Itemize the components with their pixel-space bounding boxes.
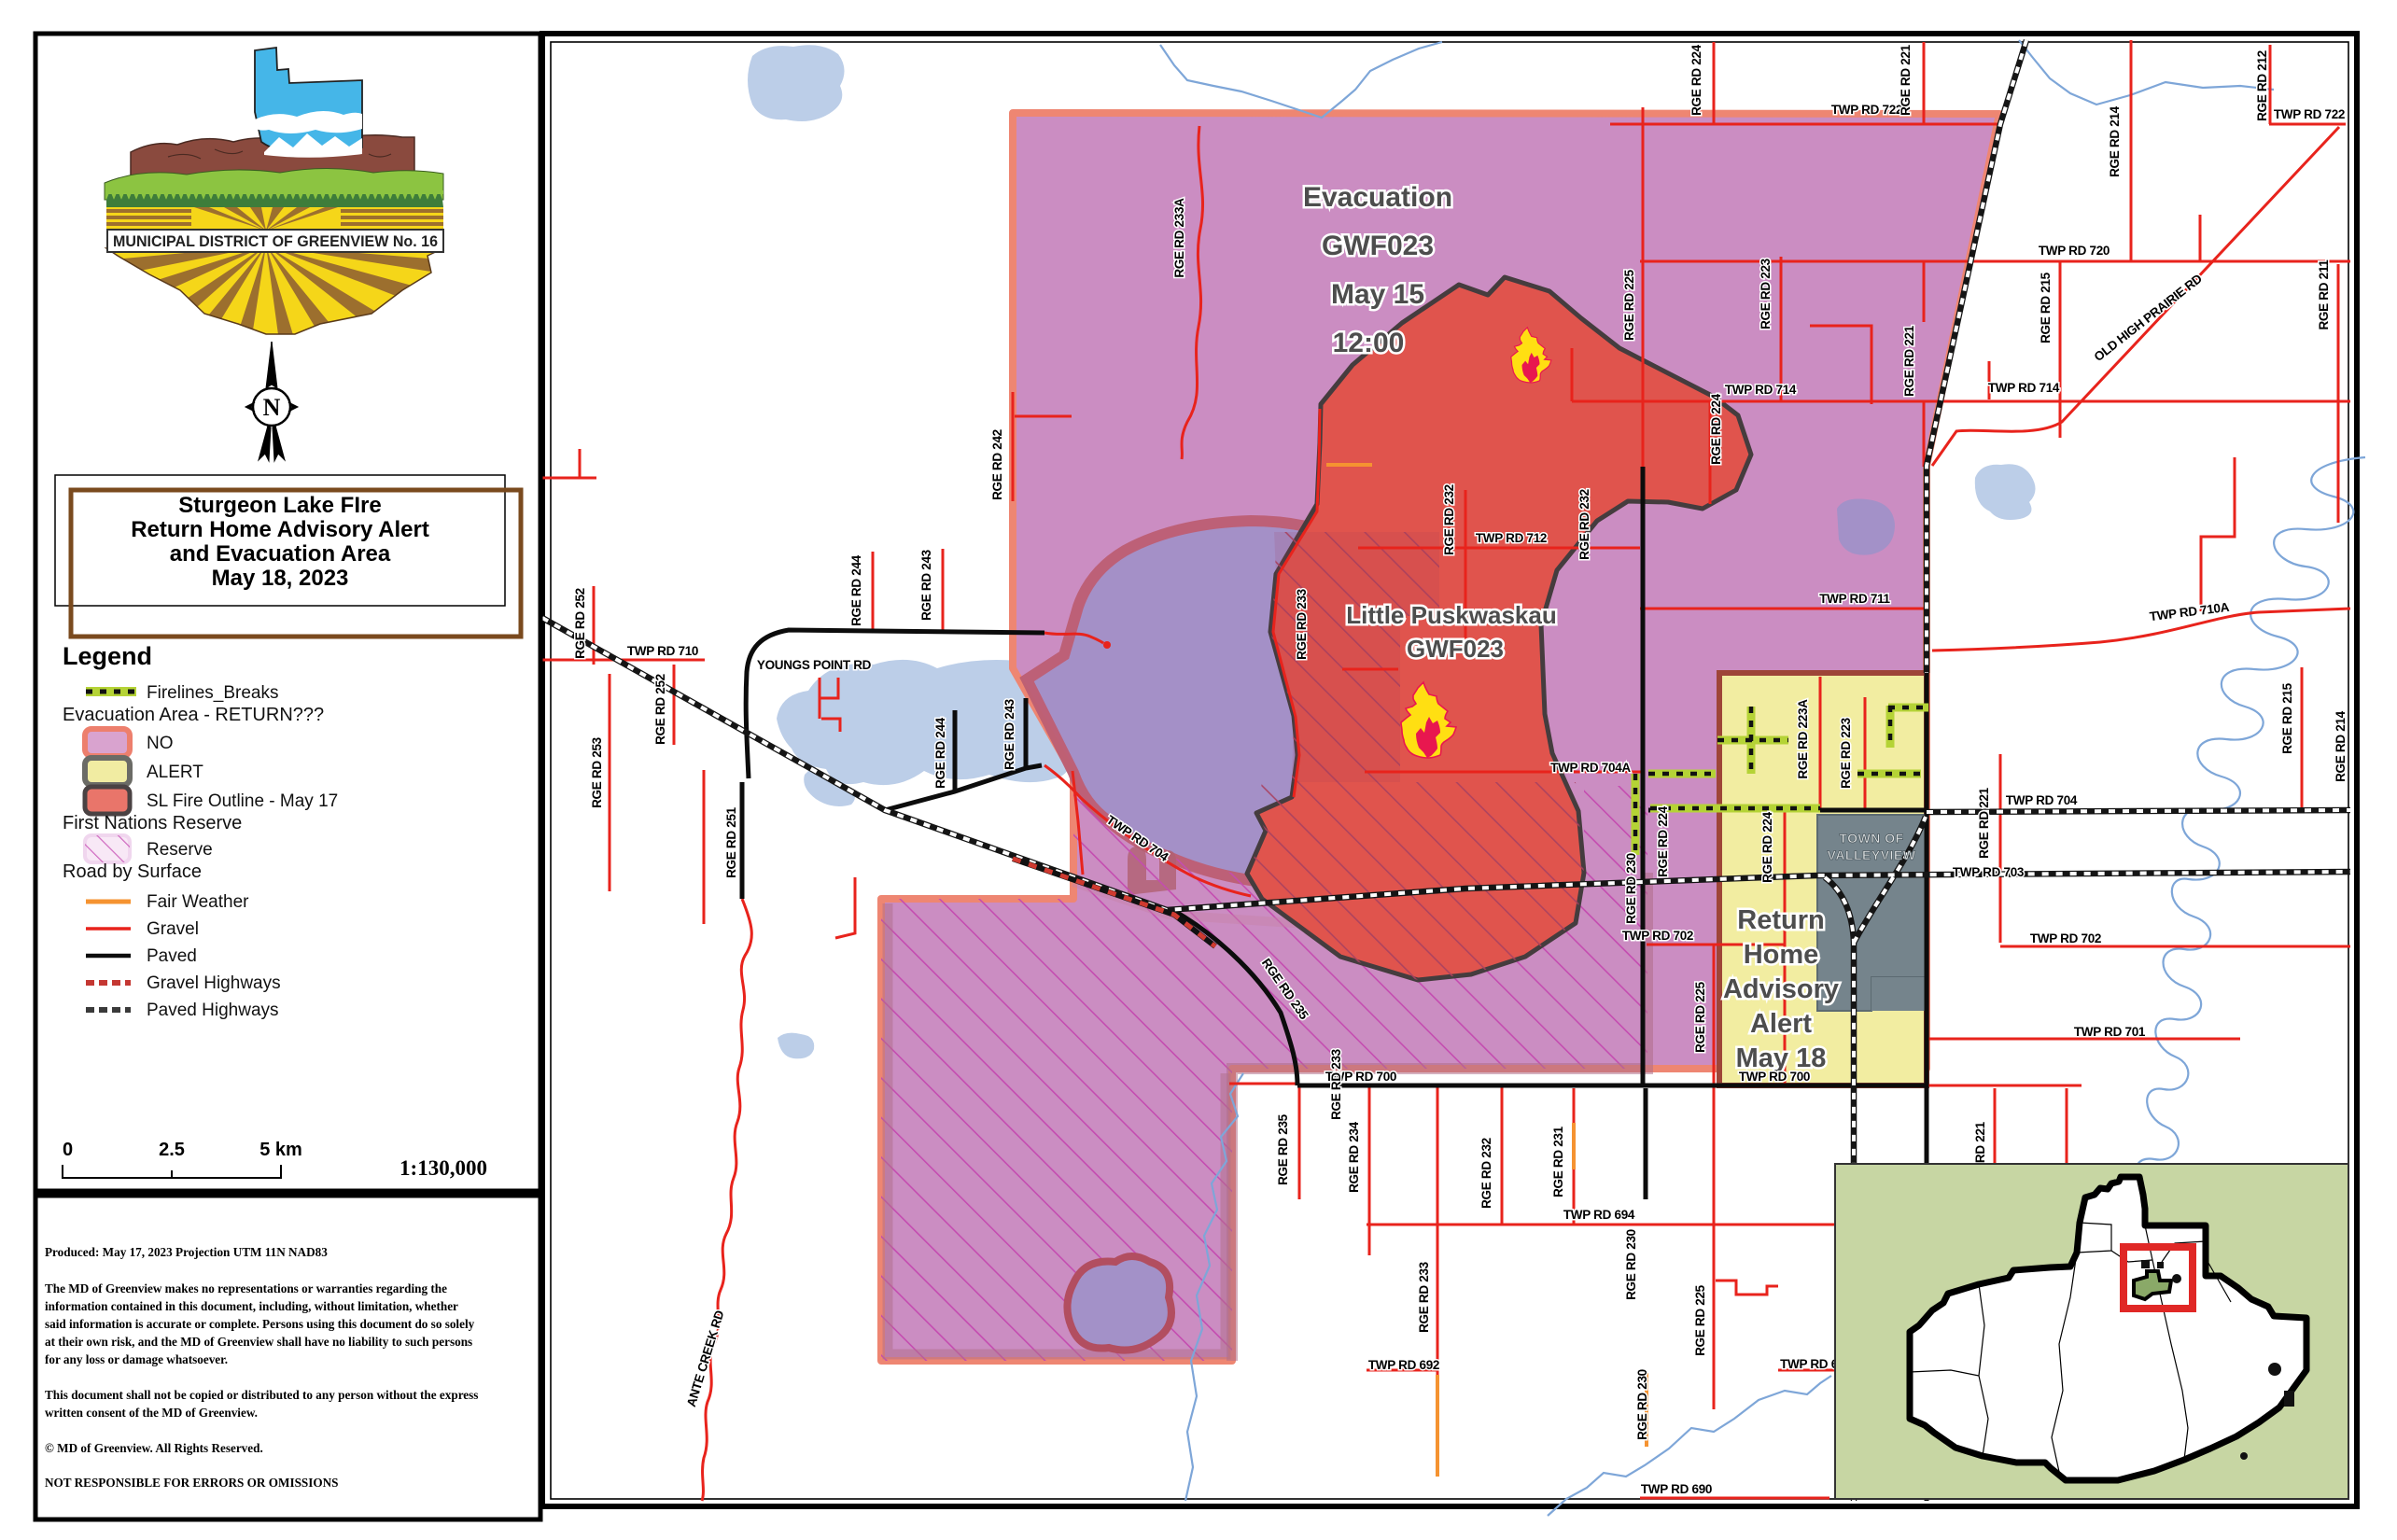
svg-text:Legend: Legend [63,642,152,670]
svg-text:1:130,000: 1:130,000 [399,1156,487,1180]
svg-text:NOT RESPONSIBLE FOR ERRORS OR: NOT RESPONSIBLE FOR ERRORS OR OMISSIONS [45,1476,339,1490]
svg-text:TWP RD 722: TWP RD 722 [2274,107,2345,121]
svg-text:RGE RD 233: RGE RD 233 [1329,1048,1343,1120]
svg-text:TOWN OF: TOWN OF [1839,831,1903,846]
svg-text:RGE RD 221: RGE RD 221 [1977,787,1991,859]
svg-text:RGE RD 243: RGE RD 243 [919,549,933,621]
svg-text:Road by Surface: Road by Surface [63,861,202,882]
svg-text:TWP RD 714: TWP RD 714 [1988,381,2060,395]
svg-text:TWP RD 700: TWP RD 700 [1739,1070,1810,1084]
svg-text:RGE RD 230: RGE RD 230 [1635,1369,1649,1440]
svg-text:Gravel Highways: Gravel Highways [147,973,281,993]
svg-text:GWF023: GWF023 [1322,231,1434,261]
svg-text:Fair Weather: Fair Weather [147,892,249,912]
svg-text:RGE RD 235: RGE RD 235 [1276,1113,1290,1185]
svg-text:Alert: Alert [1750,1009,1812,1039]
svg-text:5 km: 5 km [259,1140,302,1160]
svg-text:Gravel: Gravel [147,919,199,939]
svg-text:GWF023: GWF023 [1407,635,1504,663]
svg-text:RGE RD 224: RGE RD 224 [1689,44,1703,116]
svg-text:RGE RD 233: RGE RD 233 [1295,588,1309,660]
svg-text:RGE RD 214: RGE RD 214 [2108,105,2122,177]
svg-text:TWP RD 694: TWP RD 694 [1563,1208,1635,1222]
svg-text:RGE RD 225: RGE RD 225 [1622,269,1636,341]
svg-text:RGE RD 253: RGE RD 253 [590,736,604,808]
svg-text:Home: Home [1744,940,1819,970]
svg-text:TWP RD 704A: TWP RD 704A [1550,761,1631,775]
svg-text:TWP RD 714: TWP RD 714 [1725,383,1797,397]
svg-text:Reserve: Reserve [147,840,213,860]
svg-text:Return Home Advisory Alert: Return Home Advisory Alert [131,517,429,542]
svg-text:TWP RD 711: TWP RD 711 [1819,592,1890,606]
svg-text:RGE RD 232: RGE RD 232 [1442,484,1456,555]
svg-text:RGE RD 221: RGE RD 221 [1899,44,1913,116]
svg-text:TWP RD 722: TWP RD 722 [1831,103,1902,117]
svg-text:TWP RD 702: TWP RD 702 [2030,931,2101,945]
svg-text:RGE RD 223: RGE RD 223 [1839,717,1853,789]
svg-text:TWP RD 710: TWP RD 710 [627,644,698,658]
svg-text:information contained in this: information contained in this document, … [45,1299,458,1313]
svg-text:TWP RD 6: TWP RD 6 [1780,1357,1839,1371]
svg-text:RGE RD 215: RGE RD 215 [2039,272,2053,343]
svg-text:ALERT: ALERT [147,763,203,782]
svg-text:RGE RD 211: RGE RD 211 [2317,259,2331,330]
svg-text:and Evacuation Area: and Evacuation Area [170,541,391,567]
svg-text:RGE RD 251: RGE RD 251 [724,806,738,878]
svg-text:RGE RD 252: RGE RD 252 [573,588,587,659]
svg-text:RGE RD 230: RGE RD 230 [1624,1229,1638,1300]
svg-text:May 15: May 15 [1331,279,1424,310]
svg-text:RGE RD 243: RGE RD 243 [1002,698,1016,770]
svg-text:© MD of Greenview. All Rights: © MD of Greenview. All Rights Reserved. [45,1441,263,1455]
svg-text:RGE RD 233: RGE RD 233 [1417,1261,1431,1333]
svg-text:Sturgeon Lake FIre: Sturgeon Lake FIre [178,493,381,518]
svg-text:RGE RD 212: RGE RD 212 [2255,50,2269,121]
svg-text:VALLEYVIEW: VALLEYVIEW [1828,847,1916,862]
svg-text:RGE RD 244: RGE RD 244 [933,717,947,789]
svg-text:N: N [263,394,281,421]
svg-text:TWP RD 702: TWP RD 702 [1622,929,1693,943]
svg-text:First Nations Reserve: First Nations Reserve [63,813,242,833]
svg-text:RGE RD 252: RGE RD 252 [653,674,667,745]
svg-text:RGE RD 224: RGE RD 224 [1760,811,1774,883]
svg-text:RGE RD 234: RGE RD 234 [1347,1121,1361,1193]
svg-text:RGE RD 224: RGE RD 224 [1709,393,1723,465]
svg-text:2.5: 2.5 [159,1140,185,1160]
svg-text:Evacuation Area - RETURN???: Evacuation Area - RETURN??? [63,705,324,725]
svg-text:Produced: May 17, 2023 Projec: Produced: May 17, 2023 Projection UTM 11… [45,1245,328,1259]
svg-text:written consent of the MD of G: written consent of the MD of Greenview. [45,1406,258,1420]
svg-text:RGE RD 214: RGE RD 214 [2334,710,2348,782]
svg-text:Advisory: Advisory [1723,974,1839,1004]
svg-text:for any loss or damage whatsoe: for any loss or damage whatsoever. [45,1352,228,1366]
svg-text:RGE RD 232: RGE RD 232 [1479,1138,1493,1209]
svg-text:RGE RD 244: RGE RD 244 [849,554,863,626]
svg-text:Evacuation: Evacuation [1303,182,1452,213]
svg-text:Little Puskwaskau: Little Puskwaskau [1346,601,1556,629]
svg-text:MUNICIPAL DISTRICT OF GREENVIE: MUNICIPAL DISTRICT OF GREENVIEW No. 16 [113,232,438,250]
svg-text:TWP RD 703: TWP RD 703 [1953,865,2025,879]
svg-text:TWP RD 701: TWP RD 701 [2074,1025,2146,1039]
svg-text:TWP RD 704: TWP RD 704 [2006,793,2078,807]
svg-text:RGE RD 230: RGE RD 230 [1624,853,1638,924]
svg-text:Firelines_Breaks: Firelines_Breaks [147,683,279,703]
svg-text:RGE RD 225: RGE RD 225 [1693,981,1707,1053]
svg-text:12:00: 12:00 [1333,328,1405,358]
svg-text:RGE RD 223A: RGE RD 223A [1796,699,1810,779]
svg-text:RGE RD 223: RGE RD 223 [1759,258,1773,329]
svg-text:RGE RD 242: RGE RD 242 [990,429,1004,500]
svg-text:TWP RD 712: TWP RD 712 [1476,531,1547,545]
svg-text:Paved: Paved [147,946,197,966]
svg-text:0: 0 [63,1140,73,1160]
svg-text:TWP RD 720: TWP RD 720 [2039,244,2110,258]
svg-text:This document shall not be cop: This document shall not be copied or dis… [45,1388,478,1402]
svg-text:SL Fire Outline - May 17: SL Fire Outline - May 17 [147,791,338,811]
svg-text:YOUNGS POINT RD: YOUNGS POINT RD [757,658,872,672]
svg-text:RGE RD 215: RGE RD 215 [2280,682,2294,754]
svg-text:Return: Return [1737,905,1824,935]
svg-text:NO: NO [147,734,174,753]
svg-text:at their own risk, and the MD: at their own risk, and the MD of Greenvi… [45,1335,472,1349]
svg-text:TWP RD 690: TWP RD 690 [1641,1482,1712,1496]
svg-text:The MD of Greenview makes no r: The MD of Greenview makes no representat… [45,1281,447,1295]
svg-text:said information is accurate o: said information is accurate or complete… [45,1317,475,1331]
svg-text:RGE RD 224: RGE RD 224 [1656,805,1670,877]
svg-text:RGE RD 233A: RGE RD 233A [1172,198,1186,278]
svg-text:TWP RD 692: TWP RD 692 [1368,1358,1439,1372]
svg-text:Paved Highways: Paved Highways [147,1001,279,1020]
svg-text:RGE RD 221: RGE RD 221 [1902,325,1916,397]
svg-text:RGE RD 232: RGE RD 232 [1577,489,1591,560]
svg-text:RGE RD 225: RGE RD 225 [1693,1284,1707,1356]
svg-text:May 18, 2023: May 18, 2023 [212,566,349,591]
svg-text:RGE RD 231: RGE RD 231 [1551,1126,1565,1197]
